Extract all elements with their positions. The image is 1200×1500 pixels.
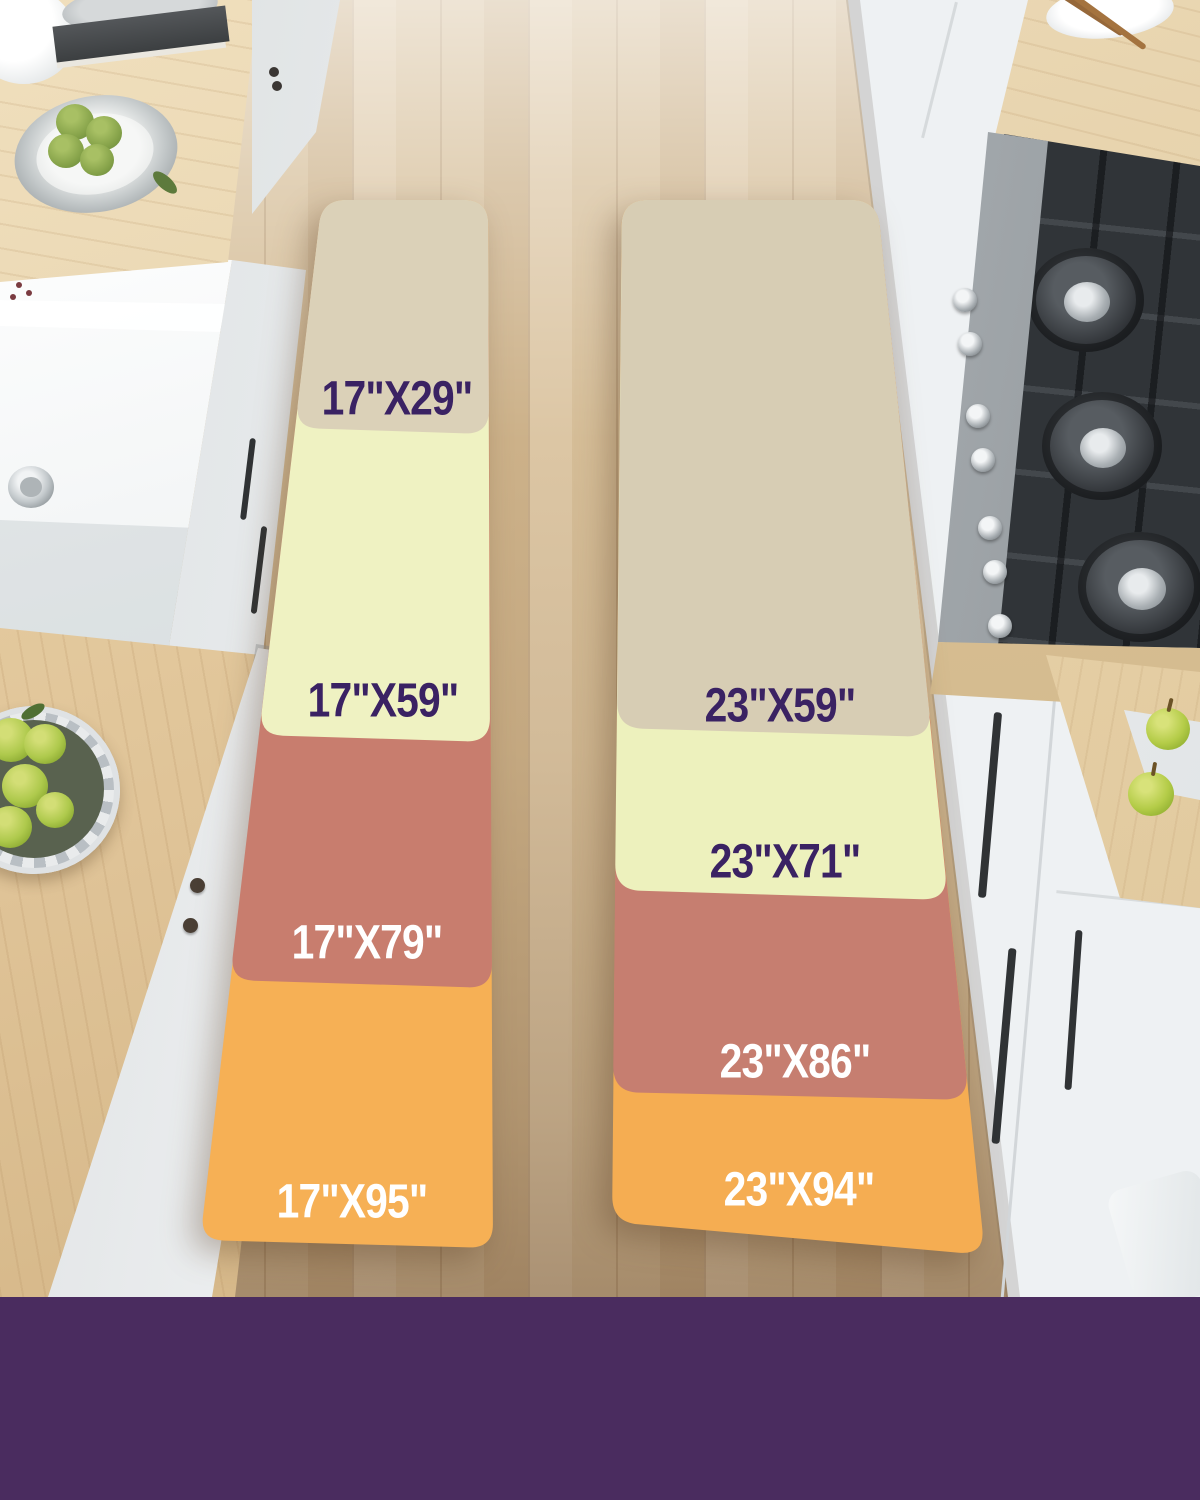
mat-size-label: 23"X94" [724,1163,875,1218]
product-size-infographic: 17"X29" 17"X59" 17"X79" 17"X95" 23"X59" … [0,0,1200,1500]
mat-size-band-23x59 [0,0,1200,1297]
kitchen-photo: 17"X29" 17"X59" 17"X79" 17"X95" 23"X59" … [0,0,1200,1297]
mat-size-label: 23"X59" [705,679,856,734]
mat-size-band-23x94 [0,0,1200,1297]
right-runner-mat: 23"X59" 23"X71" 23"X86" 23"X94" [0,0,1200,1297]
mat-size-band-23x86 [0,0,1200,1297]
mat-size-label: 23"X86" [720,1035,871,1090]
mat-size-band-23x71 [0,0,1200,1297]
size-warning-banner: Choose Your Preferred Size — It Matters [0,1297,1200,1500]
mat-size-label: 23"X71" [710,835,861,890]
